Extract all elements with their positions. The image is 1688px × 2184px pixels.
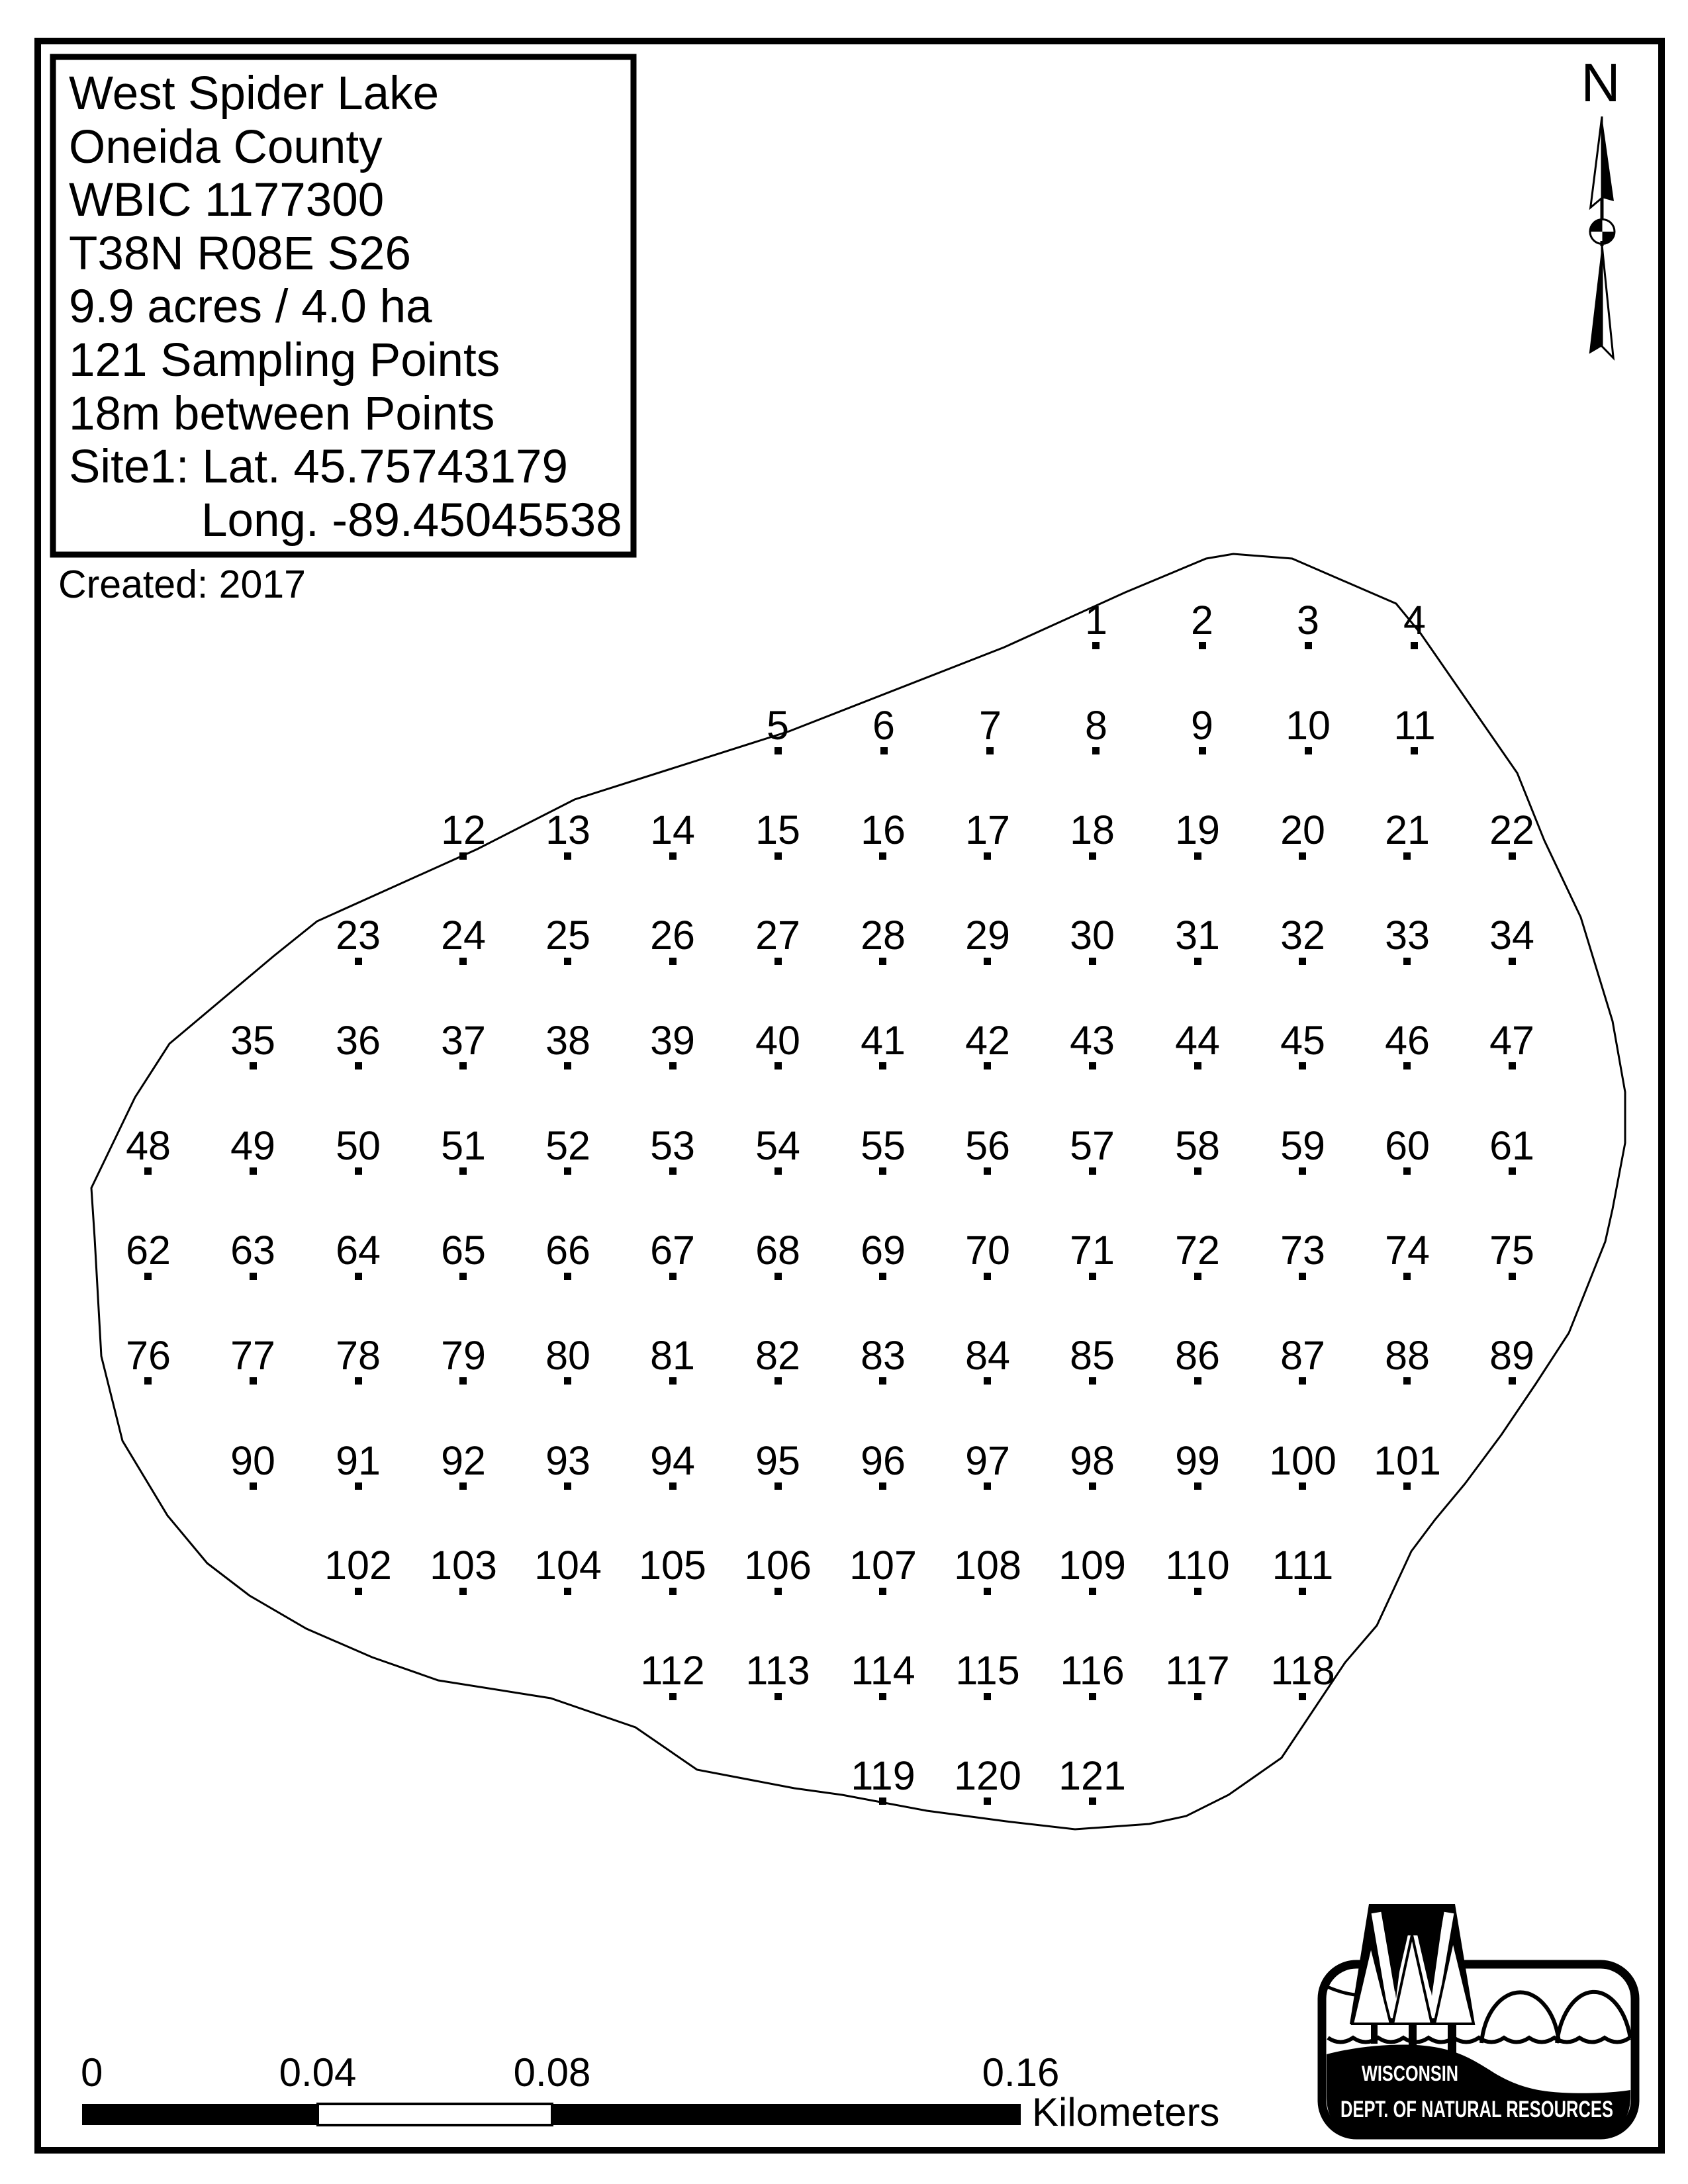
svg-text:72: 72 <box>1175 1228 1220 1273</box>
svg-text:114: 114 <box>851 1648 915 1693</box>
svg-text:110: 110 <box>1165 1543 1229 1588</box>
svg-text:0: 0 <box>81 2050 103 2095</box>
svg-text:94: 94 <box>650 1438 695 1483</box>
svg-text:64: 64 <box>336 1228 381 1273</box>
svg-text:11: 11 <box>1393 703 1435 748</box>
svg-text:45: 45 <box>1280 1018 1325 1063</box>
svg-text:Created: 2017: Created: 2017 <box>58 563 306 606</box>
svg-text:48: 48 <box>126 1123 171 1168</box>
svg-text:18m between Points: 18m between Points <box>69 388 494 440</box>
svg-text:44: 44 <box>1175 1018 1220 1063</box>
svg-text:0.08: 0.08 <box>514 2050 591 2095</box>
svg-text:24: 24 <box>441 913 486 958</box>
svg-text:13: 13 <box>545 807 590 852</box>
svg-text:0.16: 0.16 <box>982 2050 1060 2095</box>
svg-text:47: 47 <box>1489 1018 1534 1063</box>
svg-text:96: 96 <box>861 1438 906 1483</box>
svg-text:111: 111 <box>1272 1543 1334 1588</box>
svg-text:52: 52 <box>545 1123 590 1168</box>
svg-text:54: 54 <box>755 1123 800 1168</box>
svg-text:8: 8 <box>1085 703 1107 748</box>
svg-text:9.9 acres / 4.0 ha: 9.9 acres / 4.0 ha <box>69 281 432 333</box>
svg-text:71: 71 <box>1070 1228 1115 1273</box>
svg-text:10: 10 <box>1286 703 1331 748</box>
svg-text:50: 50 <box>336 1123 381 1168</box>
svg-text:46: 46 <box>1385 1018 1430 1063</box>
svg-text:89: 89 <box>1489 1333 1534 1378</box>
svg-text:21: 21 <box>1385 807 1430 852</box>
svg-text:80: 80 <box>545 1333 590 1378</box>
svg-text:101: 101 <box>1374 1438 1441 1483</box>
svg-text:76: 76 <box>126 1333 171 1378</box>
svg-text:88: 88 <box>1385 1333 1430 1378</box>
svg-text:75: 75 <box>1489 1228 1534 1273</box>
svg-text:30: 30 <box>1070 913 1115 958</box>
svg-text:WBIC 1177300: WBIC 1177300 <box>69 174 384 226</box>
svg-text:12: 12 <box>441 807 486 852</box>
svg-text:92: 92 <box>441 1438 486 1483</box>
svg-text:103: 103 <box>430 1543 497 1588</box>
svg-text:116: 116 <box>1060 1648 1124 1693</box>
svg-text:4: 4 <box>1403 598 1426 643</box>
svg-text:112: 112 <box>640 1648 704 1693</box>
svg-text:79: 79 <box>441 1333 486 1378</box>
svg-text:0.04: 0.04 <box>279 2050 357 2095</box>
svg-text:67: 67 <box>650 1228 695 1273</box>
svg-text:49: 49 <box>230 1123 275 1168</box>
svg-text:38: 38 <box>545 1018 590 1063</box>
svg-text:68: 68 <box>755 1228 800 1273</box>
svg-text:65: 65 <box>441 1228 486 1273</box>
svg-text:87: 87 <box>1280 1333 1325 1378</box>
svg-text:23: 23 <box>336 913 381 958</box>
svg-text:32: 32 <box>1280 913 1325 958</box>
svg-text:20: 20 <box>1280 807 1325 852</box>
svg-text:17: 17 <box>965 807 1010 852</box>
svg-text:95: 95 <box>755 1438 800 1483</box>
svg-text:121 Sampling Points: 121 Sampling Points <box>69 334 500 387</box>
svg-text:53: 53 <box>650 1123 695 1168</box>
svg-text:78: 78 <box>336 1333 381 1378</box>
svg-text:90: 90 <box>230 1438 275 1483</box>
svg-text:109: 109 <box>1058 1543 1126 1588</box>
svg-text:Kilometers: Kilometers <box>1032 2090 1219 2134</box>
svg-text:60: 60 <box>1385 1123 1430 1168</box>
svg-text:33: 33 <box>1385 913 1430 958</box>
svg-text:105: 105 <box>639 1543 706 1588</box>
svg-text:28: 28 <box>861 913 906 958</box>
svg-text:118: 118 <box>1270 1648 1335 1693</box>
svg-text:37: 37 <box>441 1018 486 1063</box>
svg-text:61: 61 <box>1489 1123 1534 1168</box>
svg-text:16: 16 <box>861 807 906 852</box>
svg-text:27: 27 <box>755 913 800 958</box>
svg-text:58: 58 <box>1175 1123 1220 1168</box>
svg-text:Oneida County: Oneida County <box>69 121 383 173</box>
svg-text:121: 121 <box>1058 1753 1126 1798</box>
svg-text:40: 40 <box>755 1018 800 1063</box>
svg-text:WISCONSIN: WISCONSIN <box>1362 2062 1458 2085</box>
svg-text:51: 51 <box>441 1123 486 1168</box>
svg-text:86: 86 <box>1175 1333 1220 1378</box>
svg-text:104: 104 <box>534 1543 602 1588</box>
svg-text:84: 84 <box>965 1333 1010 1378</box>
svg-text:9: 9 <box>1191 703 1213 748</box>
svg-text:83: 83 <box>861 1333 906 1378</box>
svg-text:2: 2 <box>1191 598 1213 643</box>
svg-text:77: 77 <box>230 1333 275 1378</box>
svg-text:120: 120 <box>954 1753 1021 1798</box>
svg-text:73: 73 <box>1280 1228 1325 1273</box>
svg-text:West Spider Lake: West Spider Lake <box>69 68 439 120</box>
svg-text:93: 93 <box>545 1438 590 1483</box>
svg-text:3: 3 <box>1297 598 1319 643</box>
svg-text:36: 36 <box>336 1018 381 1063</box>
svg-text:39: 39 <box>650 1018 695 1063</box>
svg-text:T38N R08E S26: T38N R08E S26 <box>69 228 411 280</box>
svg-text:107: 107 <box>849 1543 917 1588</box>
svg-text:91: 91 <box>336 1438 381 1483</box>
svg-text:34: 34 <box>1489 913 1534 958</box>
svg-text:99: 99 <box>1175 1438 1220 1483</box>
svg-text:57: 57 <box>1070 1123 1115 1168</box>
svg-text:62: 62 <box>126 1228 171 1273</box>
svg-text:59: 59 <box>1280 1123 1325 1168</box>
svg-text:43: 43 <box>1070 1018 1115 1063</box>
svg-text:1: 1 <box>1085 598 1107 643</box>
svg-text:63: 63 <box>230 1228 275 1273</box>
svg-text:56: 56 <box>965 1123 1010 1168</box>
svg-text:97: 97 <box>965 1438 1010 1483</box>
svg-text:35: 35 <box>230 1018 275 1063</box>
svg-text:66: 66 <box>545 1228 590 1273</box>
svg-text:14: 14 <box>650 807 695 852</box>
svg-text:15: 15 <box>755 807 800 852</box>
svg-text:70: 70 <box>965 1228 1010 1273</box>
svg-text:7: 7 <box>979 703 1002 748</box>
svg-text:26: 26 <box>650 913 695 958</box>
svg-text:5: 5 <box>767 703 789 748</box>
svg-text:69: 69 <box>861 1228 906 1273</box>
svg-text:115: 115 <box>955 1648 1019 1693</box>
svg-text:25: 25 <box>545 913 590 958</box>
svg-text:Site1: Lat. 45.75743179: Site1: Lat. 45.75743179 <box>69 441 568 493</box>
svg-text:19: 19 <box>1175 807 1220 852</box>
svg-text:85: 85 <box>1070 1333 1115 1378</box>
svg-text:117: 117 <box>1165 1648 1229 1693</box>
svg-text:29: 29 <box>965 913 1010 958</box>
svg-text:N: N <box>1581 53 1620 113</box>
svg-text:74: 74 <box>1385 1228 1430 1273</box>
svg-text:108: 108 <box>954 1543 1021 1588</box>
svg-text:113: 113 <box>745 1648 810 1693</box>
svg-text:81: 81 <box>650 1333 695 1378</box>
svg-text:106: 106 <box>744 1543 812 1588</box>
svg-text:18: 18 <box>1070 807 1115 852</box>
svg-text:42: 42 <box>965 1018 1010 1063</box>
svg-text:119: 119 <box>851 1753 915 1798</box>
svg-text:100: 100 <box>1269 1438 1336 1483</box>
svg-text:6: 6 <box>872 703 895 748</box>
svg-text:98: 98 <box>1070 1438 1115 1483</box>
svg-text:DEPT. OF NATURAL RESOURCES: DEPT. OF NATURAL RESOURCES <box>1340 2097 1613 2122</box>
svg-text:Long. -89.45045538: Long. -89.45045538 <box>201 494 622 547</box>
svg-text:22: 22 <box>1489 807 1534 852</box>
svg-text:55: 55 <box>861 1123 906 1168</box>
svg-text:102: 102 <box>324 1543 392 1588</box>
svg-text:82: 82 <box>755 1333 800 1378</box>
svg-text:31: 31 <box>1175 913 1220 958</box>
svg-text:41: 41 <box>861 1018 906 1063</box>
